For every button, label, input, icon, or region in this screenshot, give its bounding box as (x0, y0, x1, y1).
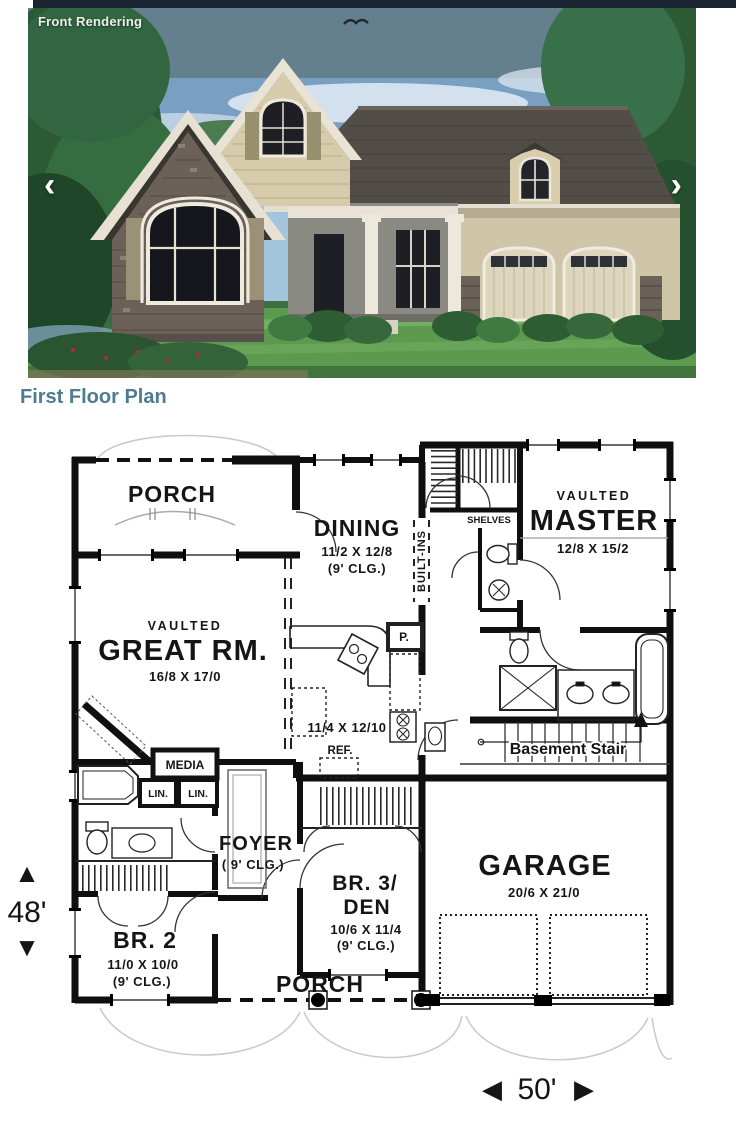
fireplace (76, 696, 150, 764)
carousel-prev-icon[interactable]: ‹ (44, 168, 55, 202)
label-foyer-clg: ( 9' CLG.) (222, 857, 284, 872)
kitchen-fixtures (290, 624, 445, 778)
depth-arrow-up: ▲ (14, 858, 40, 888)
label-porch-bottom: PORCH (276, 971, 364, 997)
label-media: MEDIA (166, 758, 205, 772)
label-shelves: SHELVES (467, 515, 511, 526)
label-br2-dims: 11/0 X 10/0 (107, 957, 178, 972)
label-master-dims: 12/8 X 15/2 (557, 541, 629, 556)
front-rendering-image[interactable]: Front Rendering ‹ › (28, 8, 696, 378)
label-foyer: FOYER (219, 833, 293, 855)
label-br3-clg: (9' CLG.) (337, 938, 395, 953)
house-rendering-art (28, 8, 696, 378)
garage-doors (440, 915, 647, 995)
label-basement-stair: Basement Stair (510, 741, 627, 758)
master-bath-fixtures (500, 632, 668, 724)
label-lin2: LIN. (188, 788, 208, 800)
label-porch-top: PORCH (128, 481, 216, 507)
label-built-ins: BUILT-INS (416, 530, 428, 592)
label-br2: BR. 2 (113, 927, 177, 953)
dimension-width: ◀ 50' ▶ (482, 1073, 594, 1106)
label-greatrm: GREAT RM. (98, 635, 268, 667)
garage-bottom-edge (416, 994, 670, 1006)
top-border-bar (33, 0, 736, 8)
label-dining-dims: 11/2 X 12/8 (321, 544, 392, 559)
depth-value: 48' (7, 896, 46, 929)
label-master-vaulted: VAULTED (557, 489, 632, 503)
width-arrow-left: ◀ (482, 1074, 502, 1104)
dimension-depth: ▲ 48' ▼ (7, 858, 46, 962)
bottom-roof-outline (100, 1008, 672, 1060)
label-garage: GARAGE (478, 850, 611, 882)
label-br3-dims: 10/6 X 11/4 (330, 922, 402, 937)
page-title: First Floor Plan (20, 386, 167, 409)
label-master: MASTER (530, 505, 658, 537)
label-kitchen-dims: 11/4 X 12/10 (307, 720, 386, 735)
label-ref: REF. (328, 745, 353, 757)
label-greatrm-dims: 16/8 X 17/0 (149, 669, 221, 684)
label-dining: DINING (314, 515, 401, 541)
first-floor-plan-drawing: PORCH DINING 11/2 X 12/8 (9' CLG.) SHELV… (0, 420, 736, 1125)
carousel-next-icon[interactable]: › (671, 168, 682, 202)
depth-arrow-down: ▼ (14, 932, 40, 962)
width-value: 50' (517, 1073, 556, 1106)
width-arrow-right: ▶ (574, 1074, 594, 1104)
label-greatrm-vaulted: VAULTED (148, 619, 223, 633)
label-dining-clg: (9' CLG.) (328, 561, 386, 576)
powder-bath-fixtures (487, 544, 517, 600)
photo-caption: Front Rendering (38, 14, 142, 29)
page: { "page": { "heading": "First Floor Plan… (0, 0, 736, 1125)
label-garage-dims: 20/6 X 21/0 (508, 885, 580, 900)
label-br2-clg: (9' CLG.) (113, 974, 171, 989)
label-br3-2: DEN (343, 896, 390, 919)
label-lin1: LIN. (148, 788, 168, 800)
label-br3-1: BR. 3/ (332, 872, 398, 895)
label-pantry: P. (399, 630, 409, 644)
